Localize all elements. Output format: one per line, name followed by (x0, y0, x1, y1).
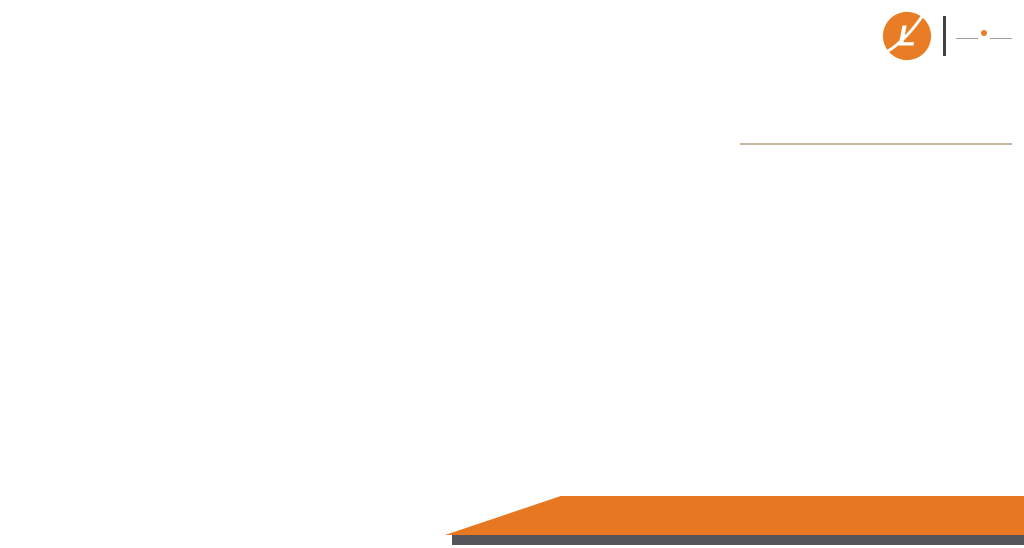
poster: L (0, 0, 1024, 548)
floor-plan (0, 0, 768, 486)
contact-bar (445, 496, 1024, 535)
footer-strip (452, 535, 1024, 545)
logo: L (881, 10, 1012, 62)
logo-divider (943, 16, 946, 56)
info-rule (740, 143, 1012, 145)
floor-plan-info (740, 143, 1012, 163)
brand-tagline (956, 38, 1012, 39)
logo-mark-icon: L (881, 10, 933, 62)
